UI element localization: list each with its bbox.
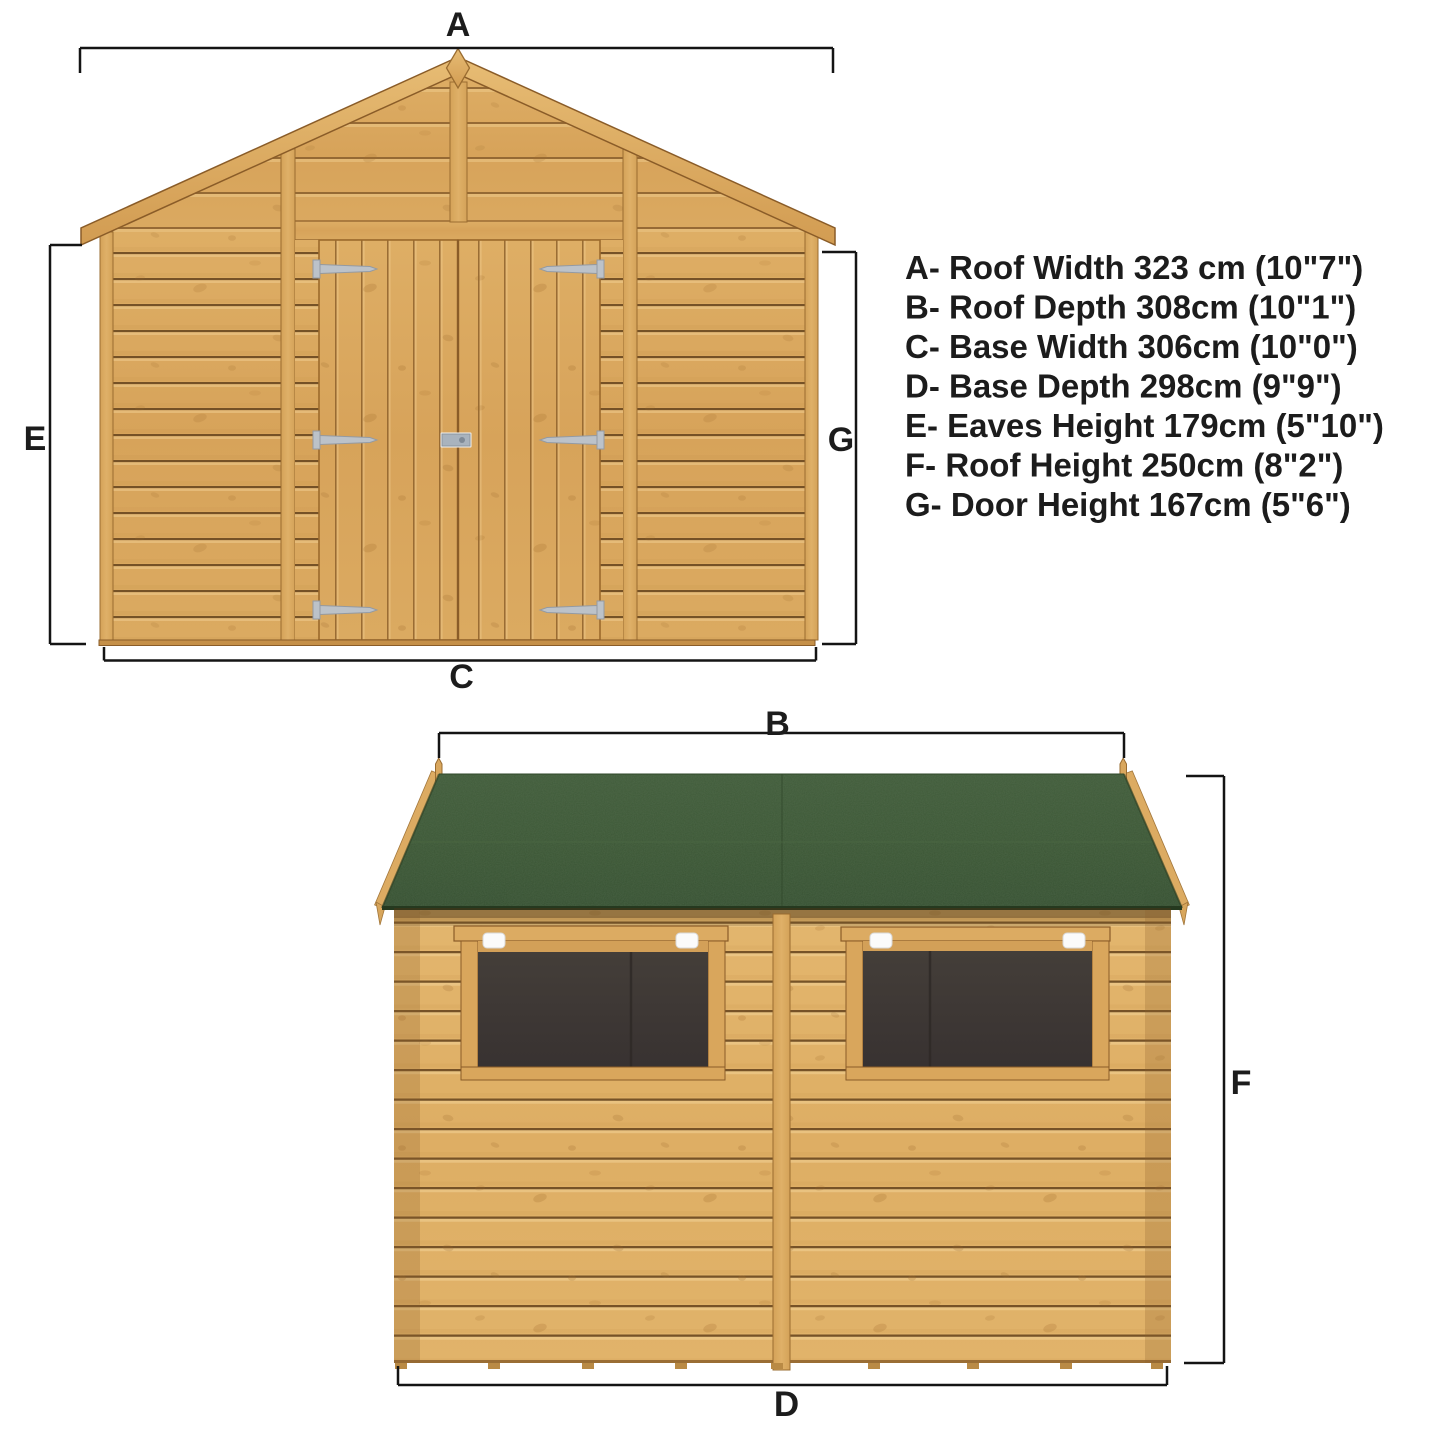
svg-text:F: F: [1231, 1064, 1252, 1102]
svg-text:A- Roof Width 323 cm (10"7"): A- Roof Width 323 cm (10"7"): [905, 249, 1363, 286]
svg-text:B- Roof Depth 308cm (10"1"): B- Roof Depth 308cm (10"1"): [905, 289, 1356, 326]
svg-text:G: G: [828, 421, 854, 459]
svg-text:D: D: [774, 1385, 799, 1424]
svg-text:G- Door Height 167cm (5"6"): G- Door Height 167cm (5"6"): [905, 486, 1351, 523]
svg-text:E- Eaves Height 179cm (5"10"): E- Eaves Height 179cm (5"10"): [905, 407, 1384, 444]
svg-text:B: B: [765, 705, 790, 743]
svg-text:D- Base Depth 298cm (9"9"): D- Base Depth 298cm (9"9"): [905, 368, 1342, 405]
svg-text:E: E: [24, 420, 47, 458]
svg-text:C: C: [449, 658, 474, 696]
svg-text:A: A: [446, 6, 471, 44]
svg-text:C- Base Width 306cm (10"0"): C- Base Width 306cm (10"0"): [905, 328, 1358, 365]
svg-text:F- Roof Height 250cm (8"2"): F- Roof Height 250cm (8"2"): [905, 447, 1343, 484]
